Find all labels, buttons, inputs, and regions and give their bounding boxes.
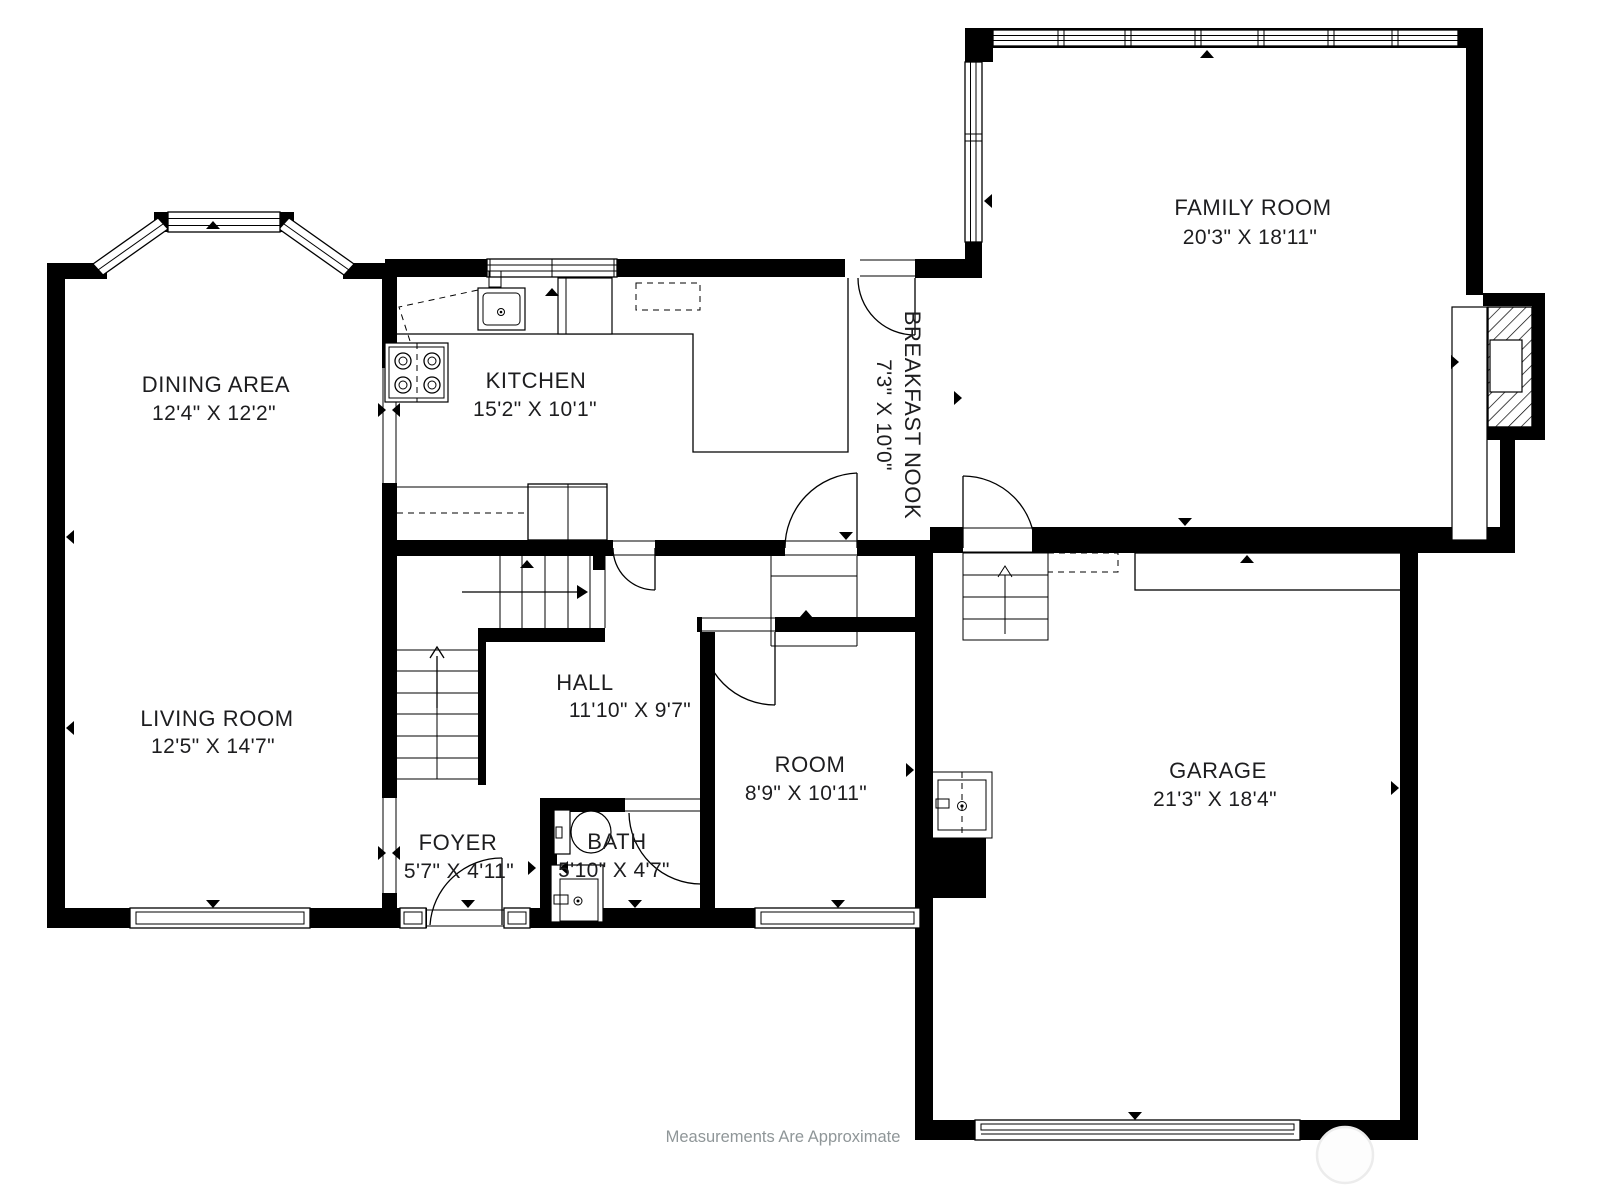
marker-dining-left xyxy=(66,530,74,544)
stair-closet xyxy=(528,484,607,540)
refrigerator xyxy=(558,278,612,334)
room-label: ROOM xyxy=(775,752,846,777)
marker-nook-family xyxy=(954,391,962,405)
foyer-label: FOYER xyxy=(419,830,498,855)
garage-label: GARAGE xyxy=(1169,758,1267,783)
family-room-label: FAMILY ROOM xyxy=(1174,195,1331,220)
bath-label: BATH xyxy=(587,829,646,854)
kitchen-fixtures xyxy=(385,271,848,452)
garage-dashed-cabinet xyxy=(1048,553,1118,572)
watermark-circle xyxy=(1317,1127,1373,1183)
garage-dims: 21'3" X 18'4" xyxy=(1153,788,1277,811)
water-heater xyxy=(932,772,992,838)
marker-room-garage-wall xyxy=(906,763,914,777)
marker-living-left xyxy=(66,721,74,735)
stove xyxy=(385,343,448,402)
marker-garage-door xyxy=(1128,1112,1142,1120)
kitchen-dims: 15'2" X 10'1" xyxy=(473,398,597,421)
family-room-side-window xyxy=(965,62,982,242)
marker-room-window xyxy=(831,900,845,908)
room-dims: 8'9" X 10'11" xyxy=(745,782,867,805)
fireplace xyxy=(1452,307,1532,540)
hall-dims: 11'10" X 9'7" xyxy=(569,699,691,722)
bath-dims: 5'10" X 4'7" xyxy=(558,859,670,882)
dining-area-dims: 12'4" X 12'2" xyxy=(152,402,276,425)
family-room-dims: 20'3" X 18'11" xyxy=(1183,226,1317,249)
marker-garage-top xyxy=(1240,555,1254,563)
foyer-dims: 5'7" X 4'11" xyxy=(404,860,514,883)
kitchen-counter xyxy=(397,278,848,452)
dishwasher xyxy=(636,283,700,310)
kitchen-window xyxy=(487,259,617,277)
garage-steps xyxy=(963,553,1048,640)
kitchen-label: KITCHEN xyxy=(486,368,587,393)
breakfast-nook-dims: 7'3" X 10'0" xyxy=(872,359,895,471)
dining-area-label: DINING AREA xyxy=(142,372,290,397)
marker-kitchen-window xyxy=(545,288,559,296)
breakfast-nook-label: BREAKFAST NOOK xyxy=(900,311,925,520)
floor-plan-page: FAMILY ROOM 20'3" X 18'11" DINING AREA 1… xyxy=(0,0,1600,1200)
living-room-dims: 12'5" X 14'7" xyxy=(151,735,275,758)
marker-nook-bottom xyxy=(839,532,853,540)
marker-living-window xyxy=(206,900,220,908)
living-room-window xyxy=(130,908,310,928)
marker-room-top xyxy=(799,610,813,618)
bay-window xyxy=(93,212,354,275)
fireplace-firebox xyxy=(1490,340,1522,392)
family-room-window-band xyxy=(993,30,1458,46)
living-room-label: LIVING ROOM xyxy=(140,706,293,731)
marker-bath-bottom xyxy=(628,900,642,908)
floor-plan: FAMILY ROOM 20'3" X 18'11" DINING AREA 1… xyxy=(0,0,1600,1200)
marker-front-door xyxy=(461,900,475,908)
marker-family-side-window xyxy=(984,194,992,208)
disclaimer-text: Measurements Are Approximate xyxy=(666,1128,901,1146)
fireplace-hearth xyxy=(1452,307,1487,540)
marker-family-window xyxy=(1200,50,1214,58)
garage-workbench xyxy=(1135,553,1412,590)
marker-family-bottom xyxy=(1178,518,1192,526)
garage-door xyxy=(975,1120,1300,1140)
hall-closet xyxy=(771,556,857,646)
marker-garage-right xyxy=(1391,781,1399,795)
garage-wall-stub xyxy=(933,838,986,898)
room-window xyxy=(755,908,920,928)
hall-label: HALL xyxy=(556,670,613,695)
kitchen-sink xyxy=(478,271,525,330)
